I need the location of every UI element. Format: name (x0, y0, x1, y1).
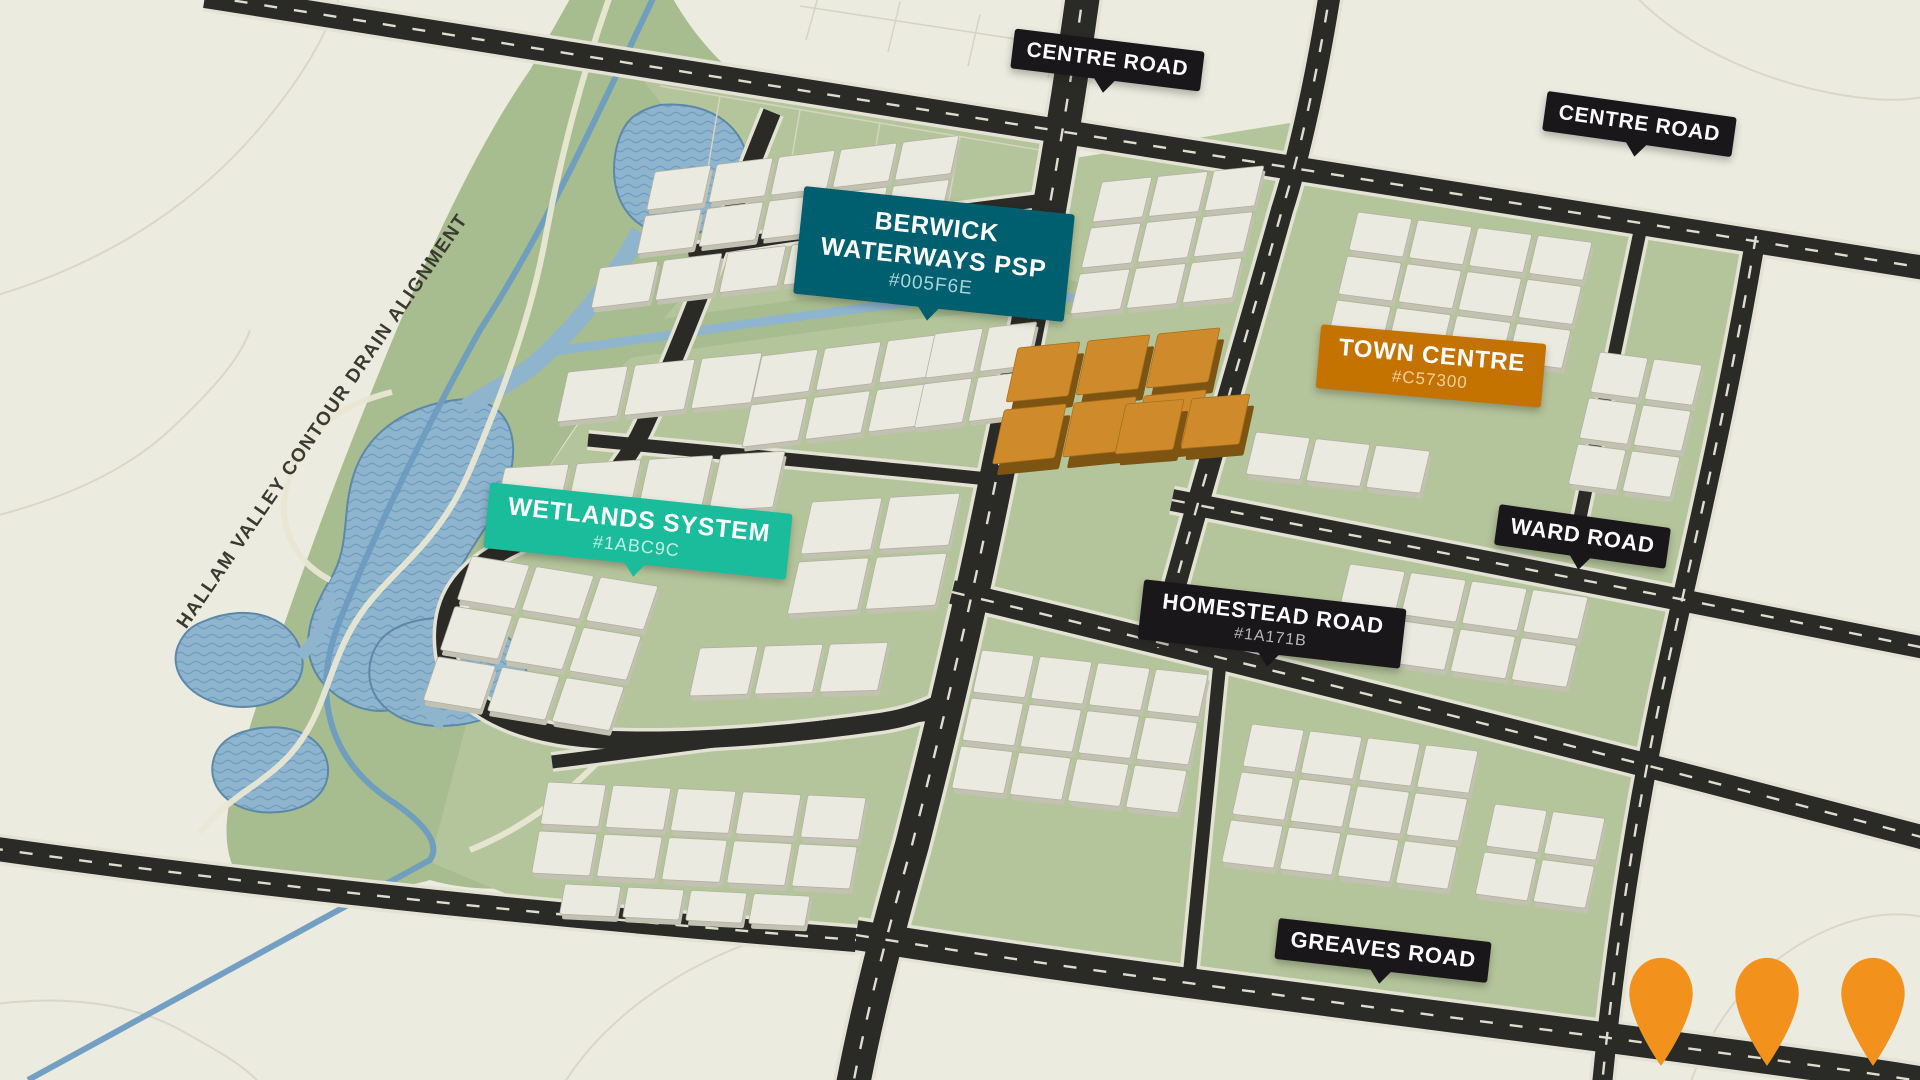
map-canvas: CENTRE ROAD CENTRE ROAD BERWICK WATERWAY… (0, 0, 1920, 1080)
map-pin-icon[interactable] (1726, 946, 1808, 1074)
map-pin-icon[interactable] (1620, 946, 1702, 1074)
map-pin-icon[interactable] (1832, 946, 1914, 1074)
